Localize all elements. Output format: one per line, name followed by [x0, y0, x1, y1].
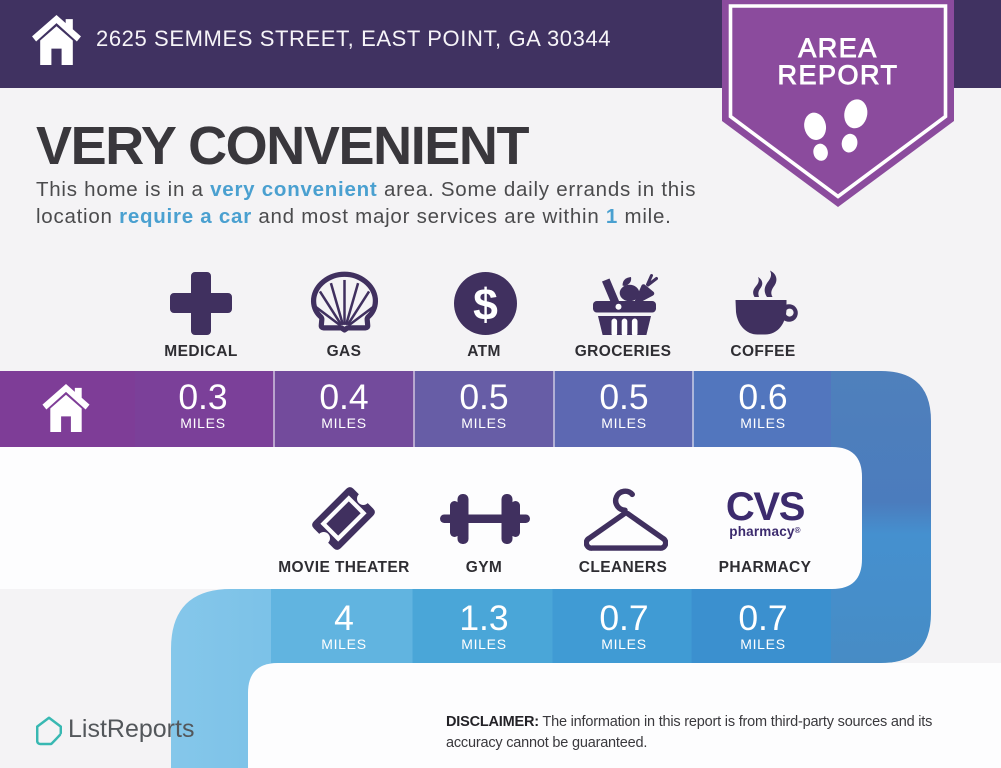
svg-text:$: $ [473, 280, 498, 329]
